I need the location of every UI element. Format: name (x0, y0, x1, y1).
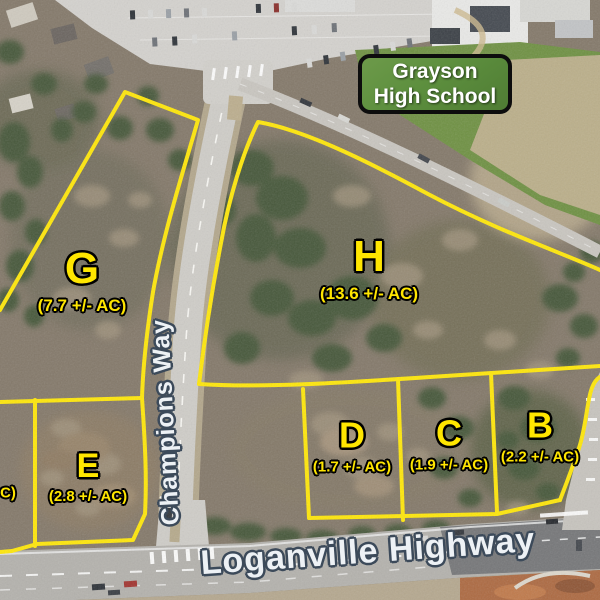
parcel-g-id: G (38, 244, 127, 294)
parcel-d-id: D (313, 415, 391, 457)
parcel-h-acreage: (13.6 +/- AC) (320, 284, 418, 304)
aerial-parcel-map: Grayson High School Champions Way Loganv… (0, 0, 600, 600)
parcel-c-id: C (410, 413, 488, 455)
parcel-h-id: H (320, 232, 418, 282)
parcel-label-g: G (7.7 +/- AC) (38, 244, 127, 316)
parcel-label-b: B (2.2 +/- AC) (501, 405, 579, 466)
parcel-e-acreage: (2.8 +/- AC) (49, 488, 127, 505)
parcel-b-id: B (501, 405, 579, 447)
parcel-e-id: E (49, 447, 127, 486)
school-sign: Grayson High School (358, 54, 512, 114)
parcel-label-d: D (1.7 +/- AC) (313, 415, 391, 476)
parcel-partial-acreage-fragment: C) (0, 485, 16, 502)
parcel-g-acreage: (7.7 +/- AC) (38, 296, 127, 316)
parcel-b-acreage: (2.2 +/- AC) (501, 449, 579, 466)
parcel-label-c: C (1.9 +/- AC) (410, 413, 488, 474)
parcel-c-acreage: (1.9 +/- AC) (410, 457, 488, 474)
parcel-label-h: H (13.6 +/- AC) (320, 232, 418, 304)
parcel-d-acreage: (1.7 +/- AC) (313, 459, 391, 476)
parcel-label-partial-left: C) (0, 483, 16, 502)
parcel-label-e: E (2.8 +/- AC) (49, 447, 127, 505)
